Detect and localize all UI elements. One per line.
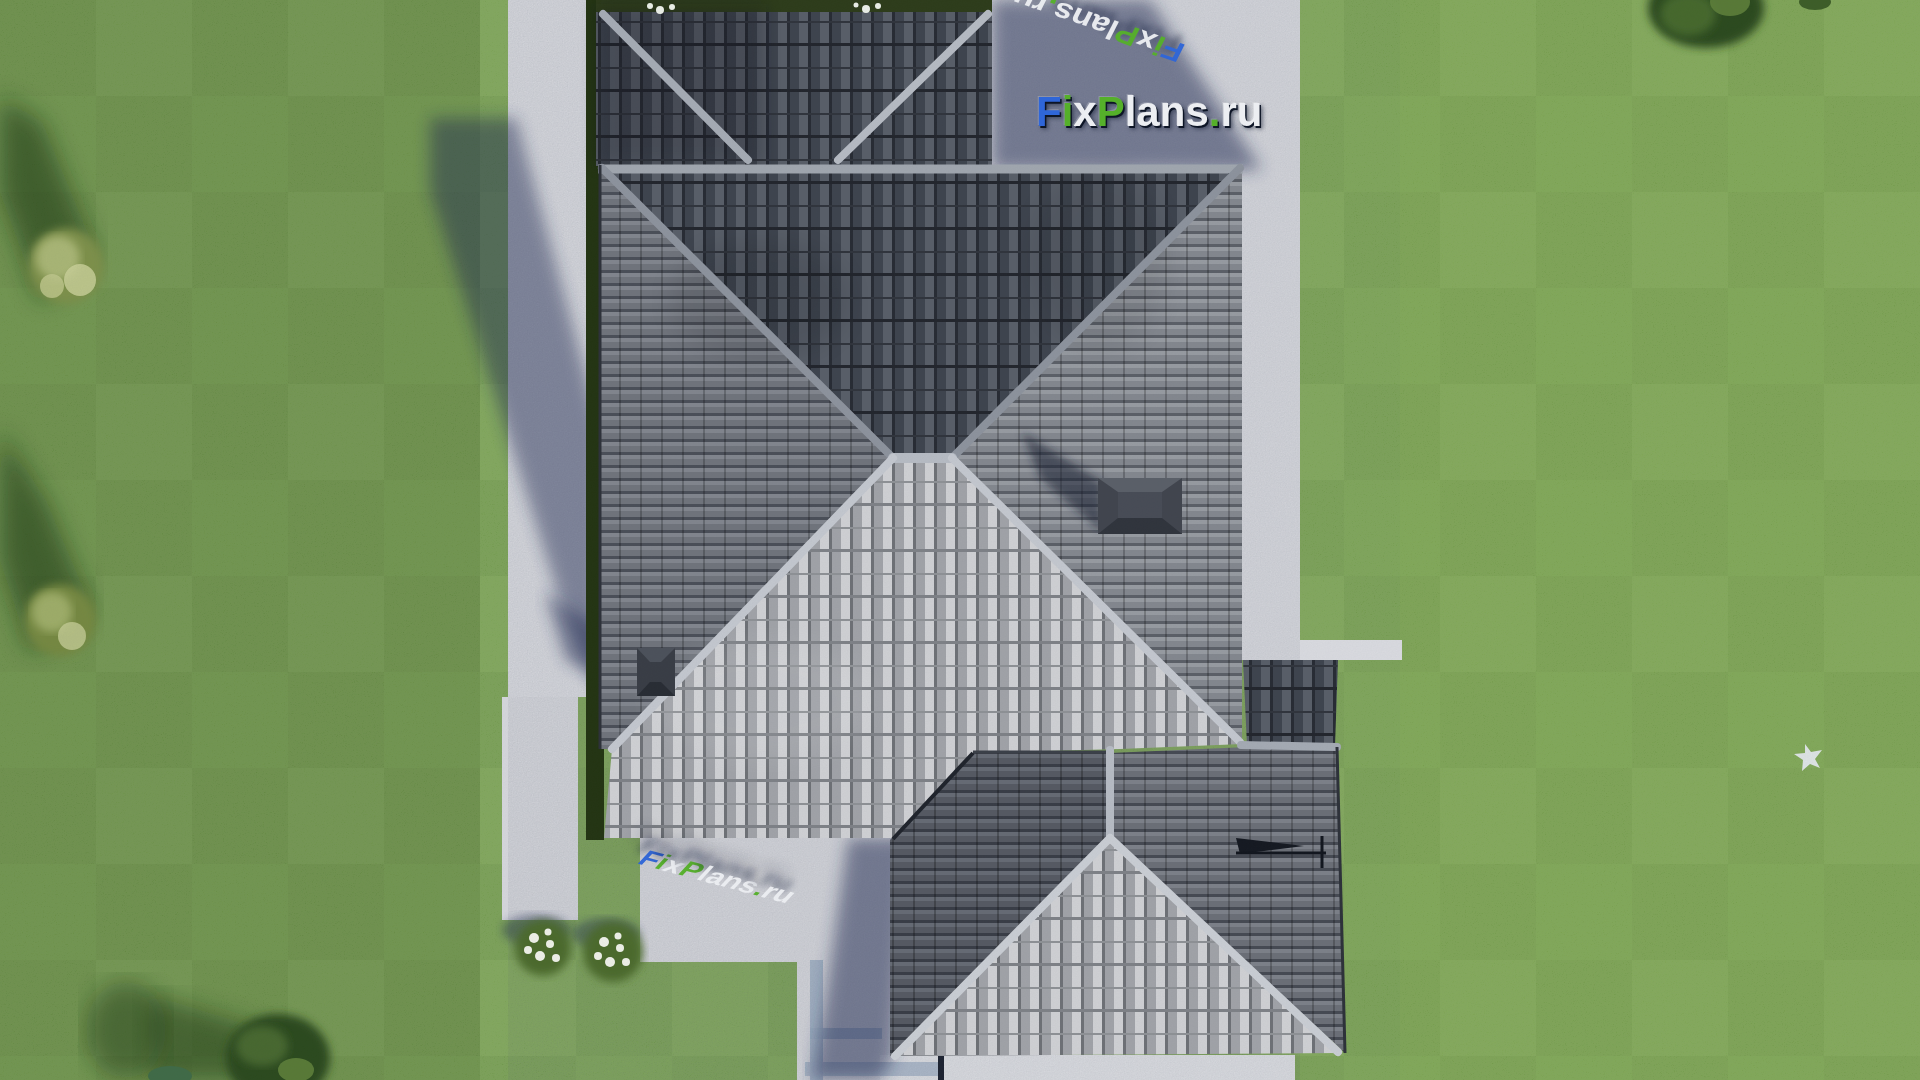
wordmark-segment: . bbox=[1209, 88, 1221, 136]
wordmark-segment: ru bbox=[1220, 88, 1262, 136]
wordmark-segment: lans bbox=[1125, 88, 1209, 136]
fixplans-watermark: FixPlans.ru bbox=[1036, 88, 1262, 136]
wordmark-segment: x bbox=[1073, 88, 1096, 136]
render-canvas bbox=[0, 0, 1920, 1080]
photo-grain bbox=[0, 0, 1920, 1080]
wordmark-segment: i bbox=[1062, 88, 1074, 136]
wordmark-segment: P bbox=[1097, 88, 1125, 136]
wordmark-segment: F bbox=[1036, 88, 1062, 136]
aerial-house-render: FixPlans.ru FixPlans.ru FixPlans.ru bbox=[0, 0, 1920, 1080]
